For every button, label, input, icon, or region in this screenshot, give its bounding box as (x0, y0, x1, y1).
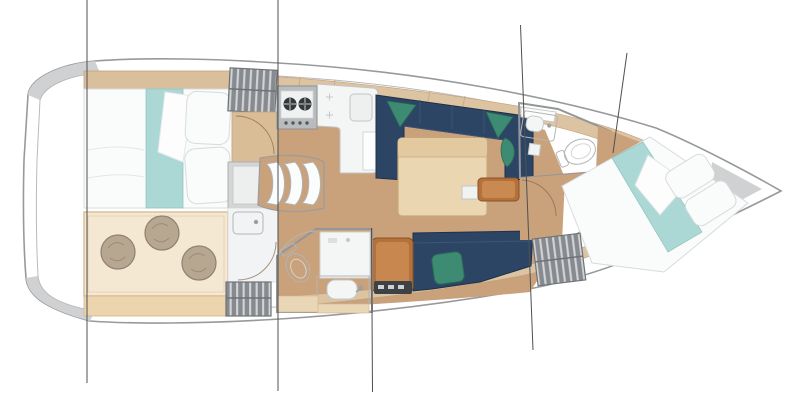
aft-cabin (84, 68, 278, 316)
bottom-settee-pillow-green (431, 251, 465, 285)
fridge-front (233, 166, 262, 204)
pouf-2 (145, 216, 179, 250)
aft-cabin-headboard (84, 71, 232, 89)
stove-burner-left (284, 98, 297, 111)
vanity-accessory-1 (328, 238, 337, 243)
hanging-locker-aft-bottom (226, 282, 271, 316)
shower-drain (528, 143, 540, 155)
vanity-accessory-2 (346, 238, 350, 242)
hanging-locker-aft-top (228, 68, 277, 113)
forward-head-toilet (554, 135, 599, 172)
table-side-box (462, 186, 479, 199)
aft-bed-pillow-2 (184, 146, 233, 204)
boat-floor-plan (0, 0, 800, 403)
aft-bed-pillow-1 (185, 91, 232, 145)
aft-cabin-shelf (232, 112, 278, 163)
aft-head-hull-panel (278, 296, 318, 312)
aft-vanity-faucet (254, 220, 258, 224)
galley-locker-door (363, 132, 377, 170)
aft-head-sink-cabinet (317, 304, 369, 313)
pouf-1 (101, 235, 135, 269)
salon-side-cabinet (478, 178, 519, 201)
aft-head-vanity (320, 232, 370, 278)
floor-plan-canvas (0, 0, 800, 403)
galley-sink (350, 94, 372, 121)
forward-cabin (520, 126, 748, 286)
salon-table (398, 138, 487, 216)
aft-lounge-side-shelf (84, 296, 228, 316)
pouf-3 (182, 246, 216, 280)
hanging-locker-forward (532, 233, 585, 285)
companionway-steps (258, 155, 324, 211)
aft-vanity-area (228, 208, 278, 282)
galley-stove (277, 86, 317, 129)
equipment-strip (374, 281, 412, 294)
stove-burner-right (299, 98, 312, 111)
